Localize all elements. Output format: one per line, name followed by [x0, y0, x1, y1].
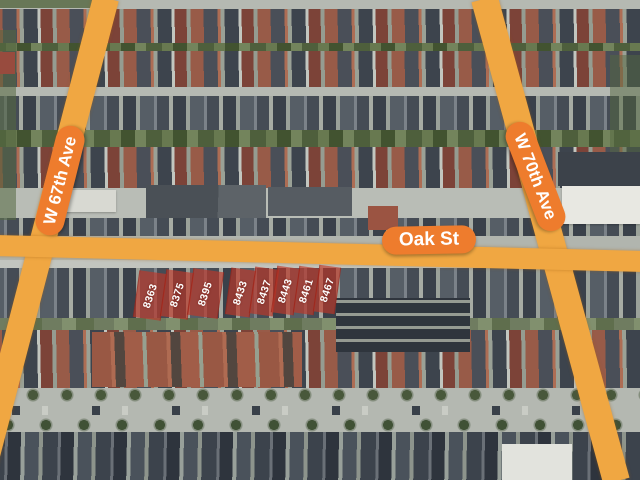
- tree-strip: [0, 130, 640, 147]
- dark-flat-roof-building: [558, 152, 640, 186]
- parcel-number: 8433: [231, 279, 250, 306]
- street-band: [0, 87, 640, 96]
- parcel-number: 8395: [196, 280, 215, 307]
- parcel-number: 8461: [297, 277, 316, 304]
- parcel-number: 8375: [167, 281, 186, 308]
- hedge: [0, 0, 100, 8]
- tree-lined-street: [0, 388, 640, 432]
- green-strip: [0, 318, 640, 330]
- red-roof-building: [0, 52, 15, 74]
- parcel-number: 8467: [317, 276, 336, 303]
- townhouse-complex: [336, 298, 470, 352]
- street-label-oak-st: Oak St: [382, 225, 476, 255]
- white-roof-building: [562, 186, 640, 224]
- dark-flat-roof-building: [146, 185, 266, 218]
- houses-row: [0, 96, 640, 130]
- street-label-text: Oak St: [399, 228, 460, 251]
- parcel-highlight: 8395: [187, 268, 224, 319]
- parcel-number: 8363: [140, 282, 159, 309]
- red-roof-houses: [92, 332, 302, 387]
- dark-flat-roof-building: [268, 187, 352, 216]
- parcel-number: 8437: [254, 278, 273, 305]
- aerial-map-view: 8363 8375 8395 8433 8437 8443 8461 8467 …: [0, 0, 640, 480]
- white-roof-building: [502, 444, 572, 480]
- parcel-number: 8443: [276, 277, 295, 304]
